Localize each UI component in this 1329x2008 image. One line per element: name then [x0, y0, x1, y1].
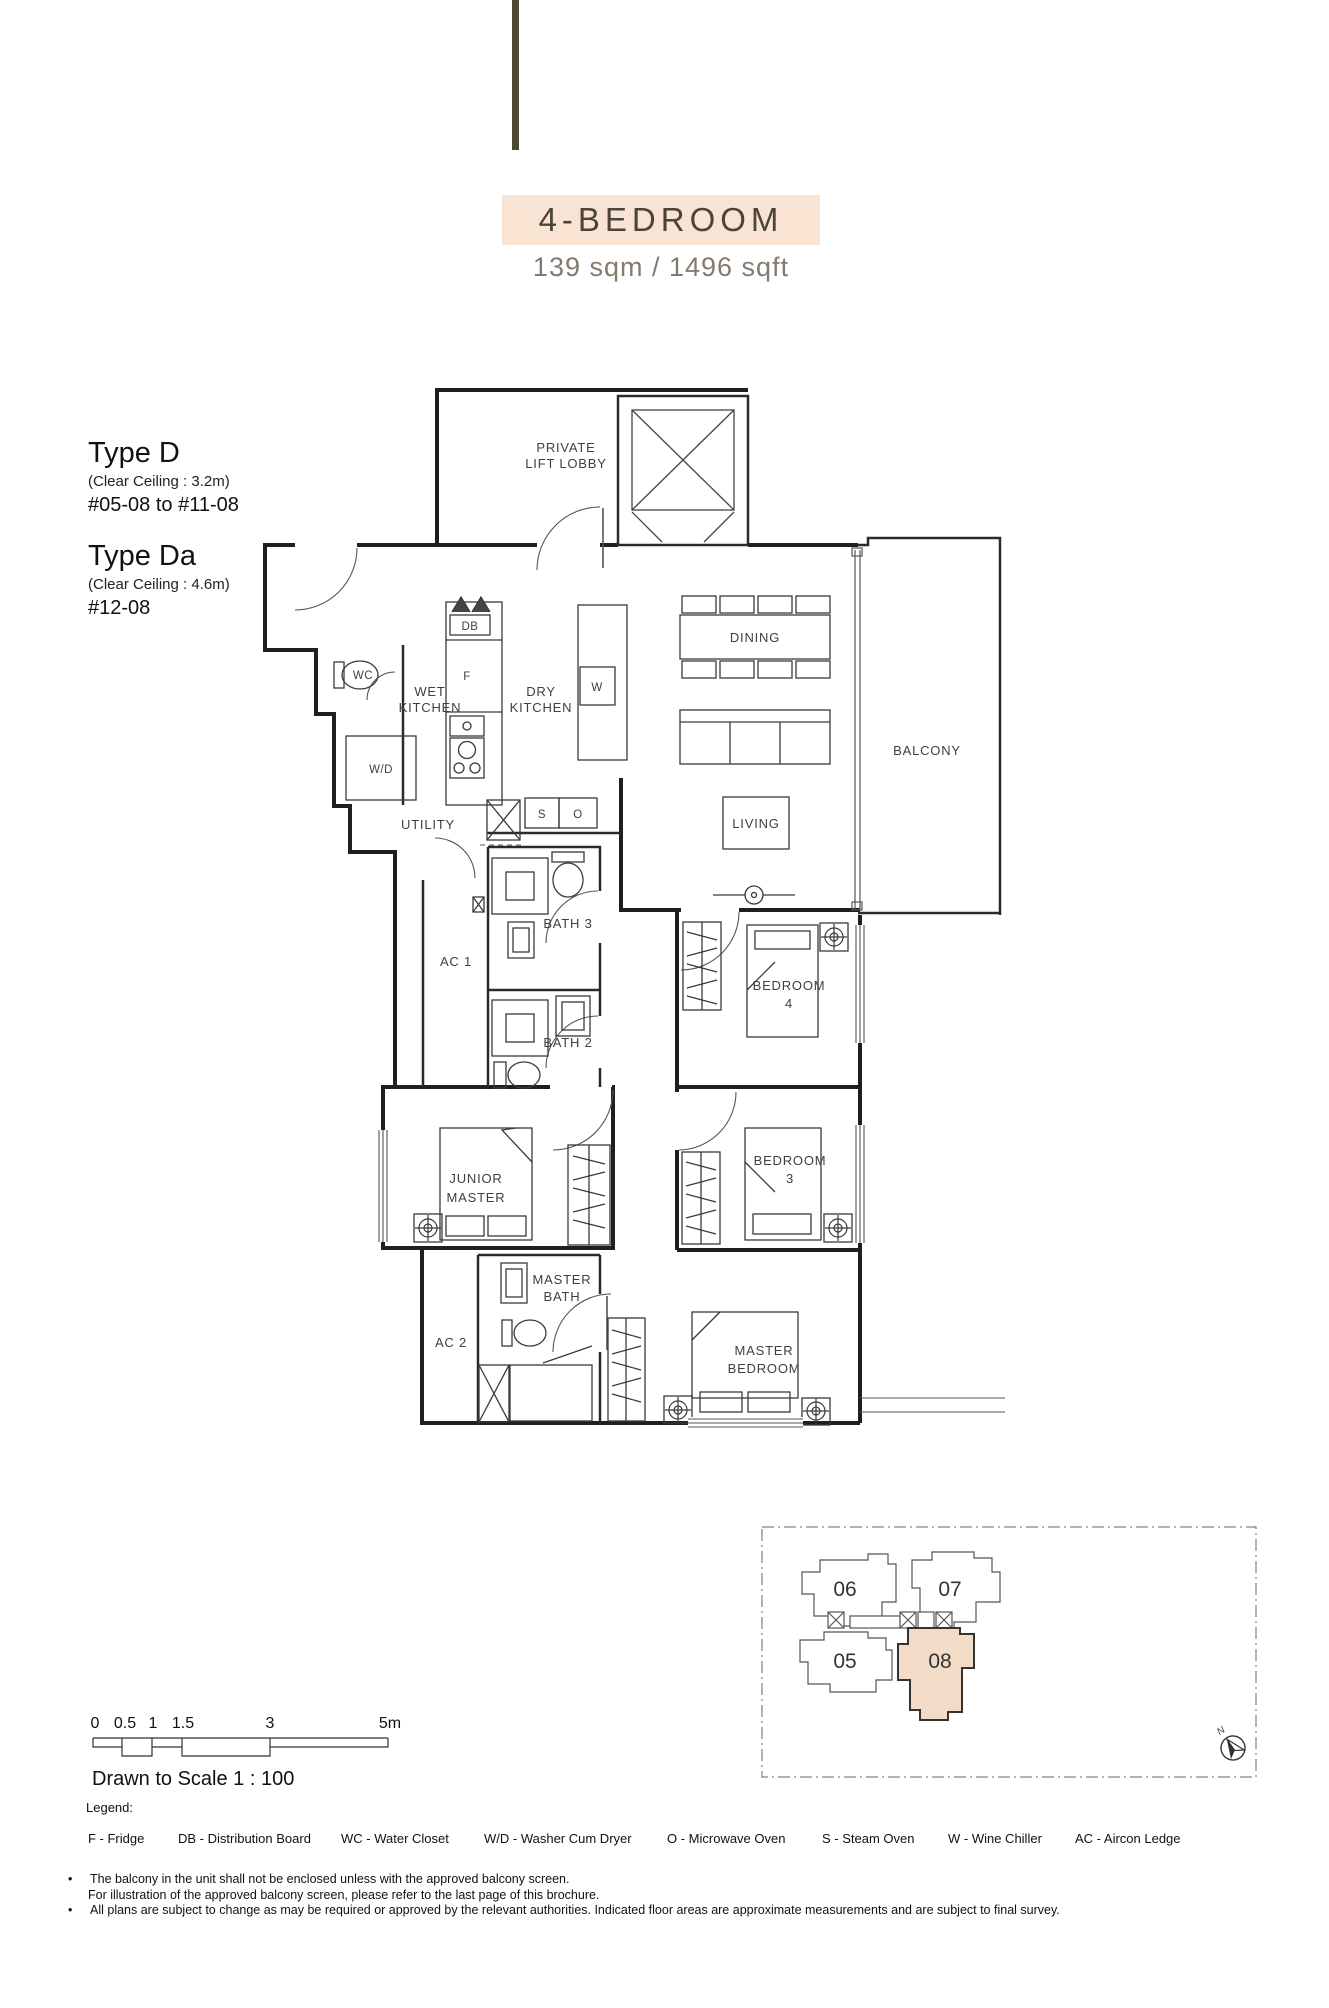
room-label-private-lift-lobby: PRIVATE: [536, 440, 595, 455]
legend-item-wine: W - Wine Chiller: [948, 1831, 1042, 1846]
scale-tick-0: 0: [91, 1715, 100, 1732]
room-label-ac1: AC 1: [440, 954, 472, 969]
north-label: N: [1215, 1724, 1228, 1738]
legend-item-wc: WC - Water Closet: [341, 1831, 449, 1846]
keyplan-unit-08: 08: [928, 1650, 951, 1673]
floorplan-walls-thick: [265, 390, 860, 1423]
bullet-spacer: [66, 1888, 88, 1904]
mark-wc: WC: [353, 670, 373, 682]
scale-tick-1: 1: [149, 1715, 158, 1732]
footnote-1: • The balcony in the unit shall not be e…: [66, 1872, 1296, 1888]
footnote-1-text: The balcony in the unit shall not be enc…: [90, 1872, 1296, 1888]
unit-type-title: 4-BEDROOM: [539, 201, 784, 239]
room-label-bedroom3-2: 3: [786, 1171, 794, 1186]
room-label-utility: UTILITY: [401, 817, 455, 832]
lift-shaft: [632, 410, 734, 542]
room-label-ac2: AC 2: [435, 1335, 467, 1350]
room-label-wet-kitchen: WET: [414, 684, 445, 699]
footnotes: • The balcony in the unit shall not be e…: [66, 1872, 1296, 1919]
type-d-name: Type D: [88, 437, 239, 470]
scale-bar: 0 0.5 1 1.5 3 5m: [80, 1700, 420, 1764]
scale-tick-5m: 5m: [379, 1715, 401, 1732]
footnote-1b-text: For illustration of the approved balcony…: [88, 1888, 1296, 1904]
decorative-vertical-line: [512, 0, 519, 150]
north-arrow-icon: N: [1208, 1720, 1249, 1765]
footnote-2-text: All plans are subject to change as may b…: [90, 1903, 1296, 1919]
room-label-bedroom4: BEDROOM: [753, 978, 826, 993]
type-da-units: #12-08: [88, 597, 230, 620]
type-d-block: Type D (Clear Ceiling : 3.2m) #05-08 to …: [88, 437, 239, 517]
mark-s: S: [538, 809, 546, 821]
keyplan-unit-07: 07: [938, 1578, 961, 1601]
room-label-dry-kitchen: DRY: [526, 684, 556, 699]
room-label-master-bath-2: BATH: [544, 1289, 581, 1304]
mark-o: O: [573, 809, 582, 821]
room-label-dining: DINING: [730, 630, 780, 645]
room-label-master-bedroom-2: BEDROOM: [728, 1361, 801, 1376]
scale-tick-05: 0.5: [114, 1715, 136, 1732]
room-label-master-bedroom: MASTER: [735, 1343, 794, 1358]
room-label-master-bath: MASTER: [533, 1272, 592, 1287]
room-label-bath3: BATH 3: [543, 916, 592, 931]
brochure-page: 4-BEDROOM 139 sqm / 1496 sqft Type D (Cl…: [0, 0, 1329, 2008]
footnote-2: • All plans are subject to change as may…: [66, 1903, 1296, 1919]
mark-w: W: [591, 682, 602, 694]
room-label-private-lift-lobby-2: LIFT LOBBY: [525, 456, 606, 471]
room-label-dry-kitchen-2: KITCHEN: [510, 700, 573, 715]
bullet-icon: •: [66, 1903, 90, 1919]
legend-item-oven: O - Microwave Oven: [667, 1831, 785, 1846]
room-label-bedroom3: BEDROOM: [754, 1153, 827, 1168]
door-arcs: [295, 507, 739, 1352]
legend-item-fridge: F - Fridge: [88, 1831, 144, 1846]
kitchen-fixtures: [334, 597, 627, 912]
floor-plan: PRIVATE LIFT LOBBY WET KITCHEN DRY KITCH…: [240, 382, 1018, 1444]
key-plan: 06 07 05 08 N: [750, 1510, 1275, 1790]
room-label-balcony: BALCONY: [893, 743, 961, 758]
mark-f: F: [463, 671, 471, 683]
mark-wd: W/D: [369, 764, 393, 776]
footnote-1-continued: For illustration of the approved balcony…: [66, 1888, 1296, 1904]
legend-title: Legend:: [86, 1800, 133, 1815]
type-d-ceiling: (Clear Ceiling : 3.2m): [88, 473, 239, 490]
legend-item-steam: S - Steam Oven: [822, 1831, 914, 1846]
bullet-icon: •: [66, 1872, 90, 1888]
balcony-glass-partition: [852, 548, 862, 910]
room-label-living: LIVING: [732, 816, 779, 831]
scale-bar-segments: [93, 1738, 388, 1756]
unit-type-badge: 4-BEDROOM: [502, 195, 820, 245]
scale-caption: Drawn to Scale 1 : 100: [92, 1768, 294, 1791]
room-label-junior-master: JUNIOR: [449, 1171, 502, 1186]
legend-item-db: DB - Distribution Board: [178, 1831, 311, 1846]
type-d-units: #05-08 to #11-08: [88, 494, 239, 517]
scale-tick-15: 1.5: [172, 1715, 194, 1732]
type-da-block: Type Da (Clear Ceiling : 4.6m) #12-08: [88, 540, 230, 620]
scale-tick-3: 3: [266, 1715, 275, 1732]
legend-item-wd: W/D - Washer Cum Dryer: [484, 1831, 632, 1846]
unit-area: 139 sqm / 1496 sqft: [402, 252, 920, 283]
legend-item-aircon: AC - Aircon Ledge: [1075, 1831, 1181, 1846]
room-label-bath2: BATH 2: [543, 1035, 592, 1050]
keyplan-unit-06: 06: [833, 1578, 856, 1601]
bathroom-fixtures: [492, 852, 592, 1421]
type-da-name: Type Da: [88, 540, 230, 573]
unit-08-highlight: [898, 1628, 974, 1720]
type-da-ceiling: (Clear Ceiling : 4.6m): [88, 576, 230, 593]
room-label-junior-master-2: MASTER: [447, 1190, 506, 1205]
keyplan-unit-05: 05: [833, 1650, 856, 1673]
mark-db: DB: [462, 621, 479, 633]
room-label-bedroom4-2: 4: [785, 996, 793, 1011]
room-label-wet-kitchen-2: KITCHEN: [399, 700, 462, 715]
